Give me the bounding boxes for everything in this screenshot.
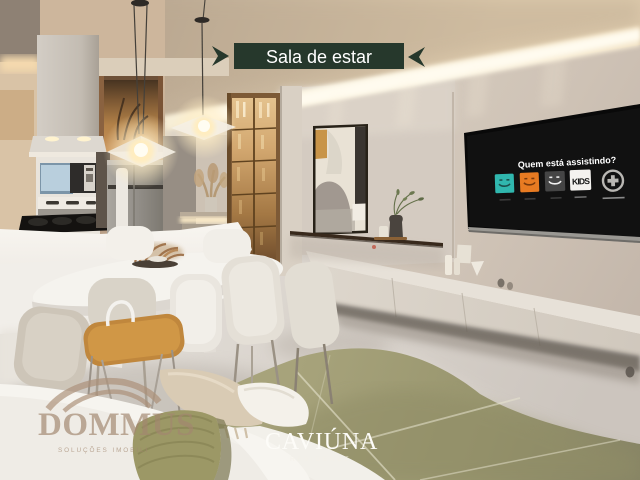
svg-text:SOLUÇÕES IMOBILI: SOLUÇÕES IMOBILI <box>58 445 149 454</box>
svg-text:KIDS: KIDS <box>572 176 591 187</box>
svg-text:Sala de estar: Sala de estar <box>266 47 372 67</box>
svg-text:DOMMUS: DOMMUS <box>38 407 195 443</box>
svg-text:CAVIÚNA: CAVIÚNA <box>265 428 378 455</box>
svg-text:RESIDENCE: RESIDENCE <box>290 456 351 463</box>
